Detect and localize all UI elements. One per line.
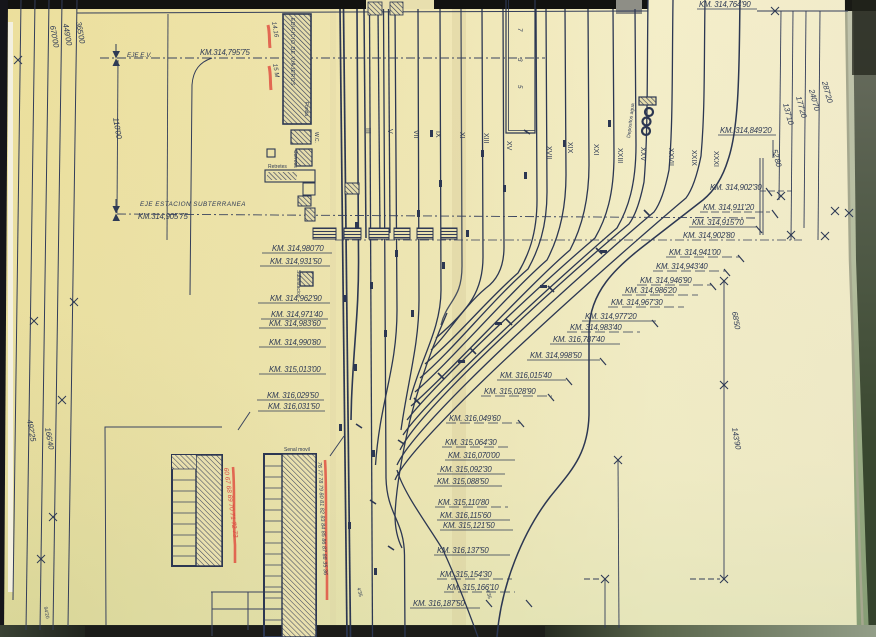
svg-text:KM. 314,986'20: KM. 314,986'20	[625, 286, 677, 295]
svg-text:KM. 316,137'50: KM. 316,137'50	[437, 546, 489, 555]
svg-text:KM. 314,980'70: KM. 314,980'70	[272, 244, 324, 253]
svg-text:III: III	[364, 128, 371, 134]
svg-text:XXV: XXV	[639, 147, 646, 161]
svg-text:KM. 314,943'40: KM. 314,943'40	[656, 262, 708, 271]
svg-text:3: 3	[516, 58, 523, 62]
svg-text:XI: XI	[458, 132, 465, 139]
svg-text:EJE E.V.: EJE E.V.	[127, 52, 152, 59]
svg-text:KM. 316,049'60: KM. 316,049'60	[449, 414, 501, 423]
svg-text:KM. 314,962'90: KM. 314,962'90	[270, 294, 322, 303]
svg-text:EJE ESTACION SUBTERRANEA: EJE ESTACION SUBTERRANEA	[140, 201, 246, 208]
svg-text:KM. 316,029'50: KM. 316,029'50	[267, 391, 319, 400]
svg-text:KM. 315,110'80: KM. 315,110'80	[438, 498, 490, 507]
svg-text:XVII: XVII	[545, 146, 552, 159]
svg-text:KM. 314,902'80: KM. 314,902'80	[683, 231, 735, 240]
svg-text:KM. 314,902'30: KM. 314,902'30	[710, 183, 762, 192]
svg-text:KM. 316,187'50: KM. 316,187'50	[413, 599, 465, 608]
svg-text:KM. 316,015'40: KM. 316,015'40	[500, 371, 552, 380]
svg-text:KM.314,905'75: KM.314,905'75	[138, 212, 188, 221]
svg-text:XV: XV	[505, 141, 512, 151]
svg-text:KM. 315,121'50: KM. 315,121'50	[443, 521, 495, 530]
svg-text:XXIX: XXIX	[690, 150, 697, 166]
svg-text:KM. 314,946'90: KM. 314,946'90	[640, 276, 692, 285]
svg-text:KM. 314,915'70: KM. 314,915'70	[692, 218, 744, 227]
svg-text:KM. 314,931'50: KM. 314,931'50	[270, 257, 322, 266]
svg-text:KM. 316,031'50: KM. 316,031'50	[268, 402, 320, 411]
svg-text:W.C.: W.C.	[313, 132, 319, 143]
svg-text:KM. 314,998'50: KM. 314,998'50	[530, 351, 582, 360]
svg-text:Senal movil: Senal movil	[284, 447, 310, 453]
svg-text:XXI: XXI	[592, 144, 599, 155]
svg-text:V: V	[386, 129, 393, 134]
svg-text:KM.314,795'75: KM.314,795'75	[200, 48, 250, 57]
svg-text:KM. 314,911'20: KM. 314,911'20	[703, 203, 755, 212]
svg-text:Correos: Correos	[292, 150, 298, 168]
svg-text:7: 7	[516, 28, 523, 32]
svg-text:Fonda: Fonda	[303, 102, 309, 116]
svg-text:KM. 315,154'30: KM. 315,154'30	[440, 570, 492, 579]
svg-text:KM. 314,764'90: KM. 314,764'90	[699, 0, 751, 9]
svg-text:KM. 314,983'60: KM. 314,983'60	[269, 319, 321, 328]
svg-text:KM. 315,088'50: KM. 315,088'50	[437, 477, 489, 486]
svg-text:KM. 315,028'90: KM. 315,028'90	[484, 387, 536, 396]
svg-text:KM. 316,115'60: KM. 316,115'60	[440, 511, 492, 520]
svg-text:5: 5	[516, 85, 523, 89]
svg-text:XXXI: XXXI	[712, 151, 719, 167]
svg-text:KM. 314,849'20: KM. 314,849'20	[720, 126, 772, 135]
svg-text:VII: VII	[412, 130, 419, 139]
svg-text:KM. 314,971'40: KM. 314,971'40	[271, 310, 323, 319]
svg-text:Retretes: Retretes	[268, 164, 287, 170]
svg-text:KM. 315,013'00: KM. 315,013'00	[269, 365, 321, 374]
svg-text:EDIFICIO DE VIAJEROS: EDIFICIO DE VIAJEROS	[289, 18, 295, 86]
svg-text:KM. 314,990'80: KM. 314,990'80	[269, 338, 321, 347]
svg-text:KM. 314,941'00: KM. 314,941'00	[669, 248, 721, 257]
svg-text:XXVII: XXVII	[667, 148, 674, 166]
svg-text:KM. 316,787'40: KM. 316,787'40	[553, 335, 605, 344]
svg-text:KM. 314,977'20: KM. 314,977'20	[585, 312, 637, 321]
svg-text:KM. 314,983'40: KM. 314,983'40	[570, 323, 622, 332]
svg-text:XIII: XIII	[482, 133, 489, 144]
svg-text:XIX: XIX	[566, 142, 573, 154]
svg-text:KM. 315,064'30: KM. 315,064'30	[445, 438, 497, 447]
svg-text:IX: IX	[434, 131, 441, 138]
svg-text:KM. 315,092'30: KM. 315,092'30	[440, 465, 492, 474]
svg-text:XXIII: XXIII	[616, 148, 623, 163]
svg-text:KM. 316,070'00: KM. 316,070'00	[448, 451, 500, 460]
svg-text:KM. 315,166'10: KM. 315,166'10	[447, 583, 499, 592]
svg-text:KM. 314,967'30: KM. 314,967'30	[611, 298, 663, 307]
